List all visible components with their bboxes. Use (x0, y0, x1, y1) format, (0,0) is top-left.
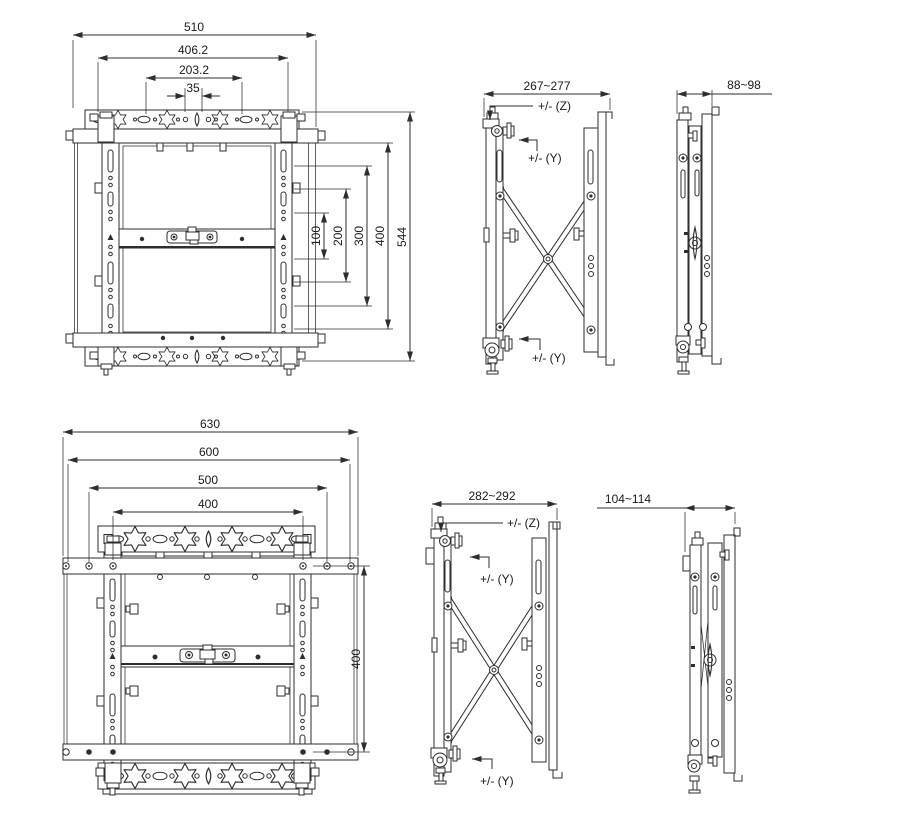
dim-label-104-114: 104~114 (605, 492, 651, 506)
dim-label-400-v: 400 (349, 649, 363, 669)
side-view-bottom-extended: 282~292 +/- (Z) +/- (Y) +/- (Y) (426, 489, 562, 788)
tv-bracket-rail (483, 107, 518, 374)
dim-label-35: 35 (186, 81, 200, 95)
side-view-bottom-folded: 104~114 (597, 492, 742, 793)
label-y-top: +/- (Y) (528, 151, 562, 165)
vertical-rail-right (275, 122, 292, 355)
dim-label-267-277: 267~277 (523, 79, 570, 93)
leader-z-bottom-view: +/- (Z) (441, 516, 540, 532)
wall-rail (574, 112, 614, 365)
dim-label-88-98: 88~98 (727, 78, 761, 92)
dimension-88-98: 88~98 (677, 78, 772, 114)
label-y-top: +/- (Y) (480, 572, 514, 586)
dim-label-400: 400 (373, 226, 387, 246)
scissor-arms (445, 595, 544, 746)
dim-label-100: 100 (309, 226, 323, 246)
dim-label-203-2: 203.2 (179, 63, 209, 77)
middle-crossbar (121, 645, 294, 667)
dim-label-630: 630 (200, 417, 220, 431)
dimension-100: 100 (294, 213, 329, 259)
label-y-bottom: +/- (Y) (480, 774, 514, 788)
front-view-large: 510 406.2 203.2 35 544 400 300 200 (66, 20, 415, 375)
bottom-star-plate (96, 763, 319, 795)
leader-y-top-bottom-view: +/- (Y) (470, 557, 514, 586)
dim-label-544: 544 (395, 227, 409, 247)
dim-label-500: 500 (198, 473, 218, 487)
dimension-35: 35 (167, 81, 220, 112)
leader-z-top: +/- (Z) (490, 99, 571, 120)
wall-rail (522, 522, 562, 778)
dim-label-510: 510 (184, 20, 204, 34)
vertical-rail-left (104, 549, 121, 775)
dim-label-400: 400 (198, 497, 218, 511)
leader-y-top: +/- (Y) (519, 140, 562, 165)
label-z-top: +/- (Z) (538, 99, 571, 113)
dimension-400-vertical: 400 (313, 566, 370, 752)
leader-y-bottom: +/- (Y) (519, 339, 566, 365)
label-z: +/- (Z) (507, 516, 540, 530)
label-y-bottom: +/- (Y) (532, 351, 566, 365)
vertical-rail-right (294, 549, 311, 775)
technical-drawing-page: 510 406.2 203.2 35 544 400 300 200 (0, 0, 924, 818)
wall-mount-dimension-drawing: 510 406.2 203.2 35 544 400 300 200 (0, 0, 924, 818)
vertical-rail-left (102, 122, 119, 355)
dim-label-600: 600 (199, 445, 219, 459)
side-view-top-folded: 88~98 (676, 78, 772, 374)
dim-label-282-292: 282~292 (468, 489, 515, 503)
side-view-top-extended: 267~277 +/- (Z) +/- (Y) +/- (Y) (483, 79, 614, 374)
dim-label-300: 300 (352, 226, 366, 246)
leader-y-bottom-bottom-view: +/- (Y) (472, 759, 514, 788)
bottom-star-plate (85, 347, 305, 375)
top-star-plate (98, 526, 315, 555)
dim-label-406-2: 406.2 (178, 43, 208, 57)
dim-label-200: 200 (331, 226, 345, 246)
front-view-small: 630 600 500 400 400 (63, 417, 370, 795)
middle-crossbar (119, 227, 275, 248)
tv-bracket-rail (426, 517, 466, 784)
bottom-wall-rail (66, 333, 325, 347)
